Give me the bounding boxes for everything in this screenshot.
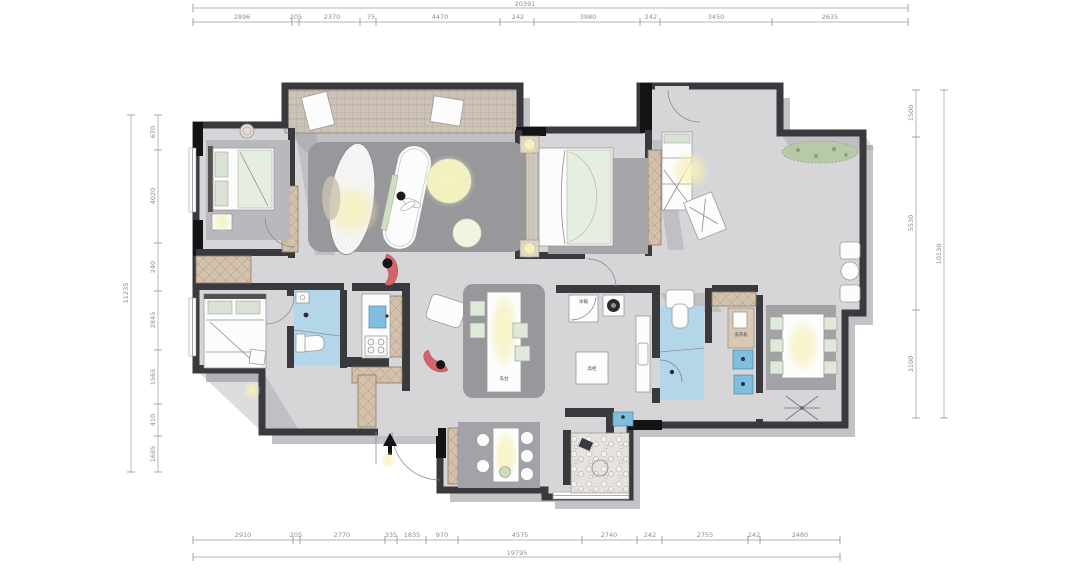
dim-bottom-6: 4575 <box>512 531 529 539</box>
dim-left-3: 2845 <box>149 312 157 329</box>
dim-left-5: 410 <box>149 414 157 426</box>
dimensions-left: 11235 670 4020 240 2845 1565 410 1685 <box>122 115 162 472</box>
breakfast-nook <box>458 422 540 488</box>
island-label: 岛台 <box>500 375 509 382</box>
bathroom-left <box>294 290 340 365</box>
dim-right-overall: 10130 <box>935 244 943 265</box>
dim-top-6: 3980 <box>580 13 597 21</box>
dim-bottom-5: 970 <box>436 531 448 539</box>
dim-bottom-4: 1835 <box>404 531 421 539</box>
dimensions-bottom: 2910 205 2770 335 1835 970 4575 2740 242… <box>193 531 840 561</box>
dim-left-4: 1565 <box>149 369 157 386</box>
dim-top-7: 242 <box>645 13 657 21</box>
dim-top-9: 2635 <box>822 13 839 21</box>
mop-sink <box>613 412 633 426</box>
bathroom-2 <box>660 290 704 400</box>
dim-left-overall: 11235 <box>122 283 130 304</box>
dim-bottom-overall: 19795 <box>507 549 528 557</box>
floor-plan-drawing: 冰箱 高柜 岛台 洗衣机 <box>0 0 1074 576</box>
dim-right-1: 5530 <box>907 215 915 232</box>
bedroom-top-left <box>206 124 290 240</box>
kitchen-west <box>362 294 390 358</box>
island-area: 岛台 <box>463 284 545 398</box>
dim-bottom-11: 2480 <box>792 531 809 539</box>
dim-bottom-8: 242 <box>644 531 656 539</box>
fridge-label: 冰箱 <box>579 298 588 305</box>
dim-bottom-2: 2770 <box>334 531 351 539</box>
dim-bottom-1: 205 <box>290 531 302 539</box>
floor-plan-page: 冰箱 高柜 岛台 洗衣机 <box>0 0 1074 576</box>
dimensions-right: 1500 5530 3100 10130 <box>907 90 948 418</box>
dim-left-2: 240 <box>149 261 157 273</box>
dim-top-0: 2896 <box>234 13 251 21</box>
dim-top-4: 4470 <box>432 13 449 21</box>
dim-left-6: 1685 <box>149 446 157 463</box>
dim-bottom-10: 242 <box>748 531 760 539</box>
dim-top-3: 75 <box>367 13 375 21</box>
dim-bottom-0: 2910 <box>235 531 252 539</box>
terrace-deck <box>285 83 520 133</box>
dim-bottom-9: 2755 <box>697 531 714 539</box>
dim-top-8: 3450 <box>708 13 725 21</box>
dim-right-2: 3100 <box>907 356 915 373</box>
dim-top-1: 205 <box>290 13 302 21</box>
dim-left-0: 670 <box>149 126 157 138</box>
dim-left-1: 4020 <box>149 188 157 205</box>
dim-top-5: 242 <box>512 13 524 21</box>
laundry-label: 洗衣机 <box>734 331 748 338</box>
dim-bottom-3: 335 <box>385 531 397 539</box>
tall-cabinet-label: 高柜 <box>588 365 597 372</box>
dim-top-overall: 20391 <box>515 0 536 8</box>
dim-bottom-7: 2740 <box>601 531 618 539</box>
dim-right-0: 1500 <box>907 105 915 122</box>
dimensions-top: 20391 2896 205 2370 75 4470 242 3980 242… <box>193 0 908 26</box>
dim-top-2: 2370 <box>324 13 341 21</box>
